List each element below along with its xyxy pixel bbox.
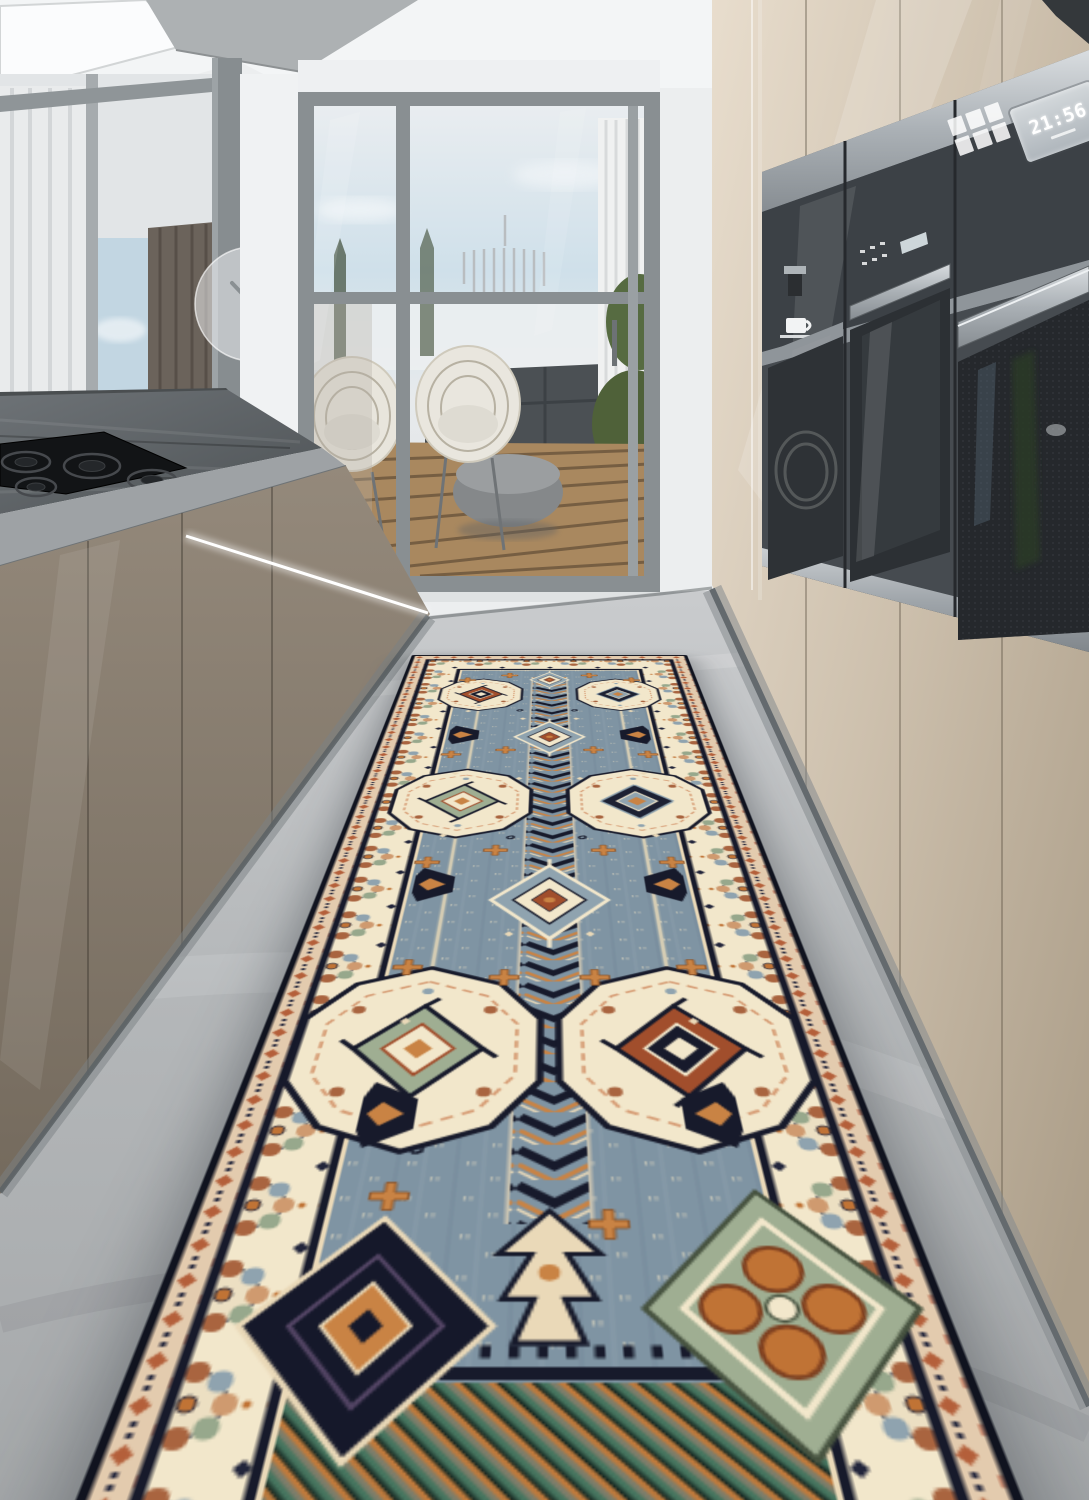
- kitchen-photo: 21:56: [0, 0, 1089, 1500]
- coffee-cup: [786, 318, 806, 333]
- oven-function-icon: [965, 109, 985, 130]
- partition-mullion: [86, 74, 98, 424]
- stone-side-table: [453, 454, 563, 540]
- wall-column-right: [660, 88, 712, 592]
- door-handle: [612, 320, 617, 366]
